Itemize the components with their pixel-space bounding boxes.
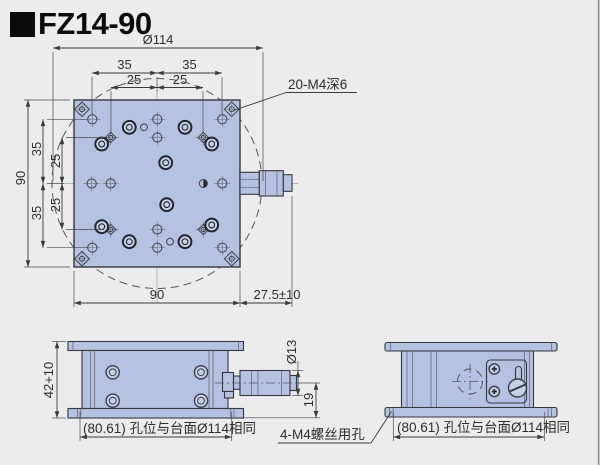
thread-note: 20-M4深6 xyxy=(288,77,347,92)
micrometer-knob xyxy=(240,371,290,396)
engineering-drawing: Ø114 35 35 25 25 90 xyxy=(0,0,600,465)
micrometer-cap xyxy=(283,175,292,192)
leader-line xyxy=(371,412,392,444)
dim-35-right: 35 xyxy=(182,57,196,72)
front-screw-hole xyxy=(106,366,119,379)
leader-line xyxy=(234,93,287,111)
micrometer-front-view xyxy=(215,371,302,399)
dim-axis-height: 19 xyxy=(301,393,316,407)
counterbore-hole xyxy=(123,235,136,248)
counterbore-hole xyxy=(179,121,192,134)
side-view: (80.61) 孔位与台面Ø114相同 4-M4螺丝用孔 xyxy=(278,343,570,444)
counterbore-hole xyxy=(205,138,218,151)
screw-note: 4-M4螺丝用孔 xyxy=(280,427,365,442)
lock-tab xyxy=(225,392,234,399)
dim-35-left: 35 xyxy=(117,57,131,72)
micrometer-top-view xyxy=(240,171,292,196)
counterbore-hole xyxy=(179,235,192,248)
counterbore-hole xyxy=(160,198,173,211)
dim-25v-top: 25 xyxy=(48,154,63,168)
dim-35v-top: 35 xyxy=(29,142,44,156)
bottom-flange xyxy=(68,409,244,419)
dim-o114-label: Ø114 xyxy=(143,32,174,47)
counterbore-hole xyxy=(159,156,172,169)
top-view: Ø114 35 35 25 25 90 xyxy=(13,32,357,307)
front-screw-hole xyxy=(106,394,119,407)
counterbore-hole xyxy=(95,138,108,151)
dim-knob-dia: Ø13 xyxy=(284,340,299,365)
base-note-side: (80.61) 孔位与台面Ø114相同 xyxy=(397,420,570,435)
dim-height: 42+10 xyxy=(41,362,56,399)
dim-35v-bottom: 35 xyxy=(29,206,44,220)
top-flange xyxy=(68,342,244,351)
micrometer-mount xyxy=(223,373,234,392)
dim-micrometer: 27.5±10 xyxy=(254,287,301,302)
top-flange xyxy=(385,343,557,352)
dim-25v-bottom: 25 xyxy=(48,198,63,212)
bottom-flange xyxy=(385,408,557,418)
dim-90-bottom: 90 xyxy=(150,287,164,302)
counterbore-hole xyxy=(123,121,136,134)
front-screw-hole xyxy=(194,394,207,407)
dim-25-left: 25 xyxy=(127,72,141,87)
counterbore-hole xyxy=(205,219,218,232)
micrometer-stem xyxy=(240,172,259,194)
counterbore-hole xyxy=(95,220,108,233)
base-note-front: (80.61) 孔位与台面Ø114相同 xyxy=(83,421,256,436)
dim-25-right: 25 xyxy=(173,72,187,87)
dim-90-left: 90 xyxy=(13,171,28,185)
drawing-sheet: FZ14-90 xyxy=(0,0,600,465)
front-view: 42+10 Ø13 19 (80.61) 孔位与台面Ø114相同 xyxy=(41,340,320,441)
front-screw-hole xyxy=(194,366,207,379)
